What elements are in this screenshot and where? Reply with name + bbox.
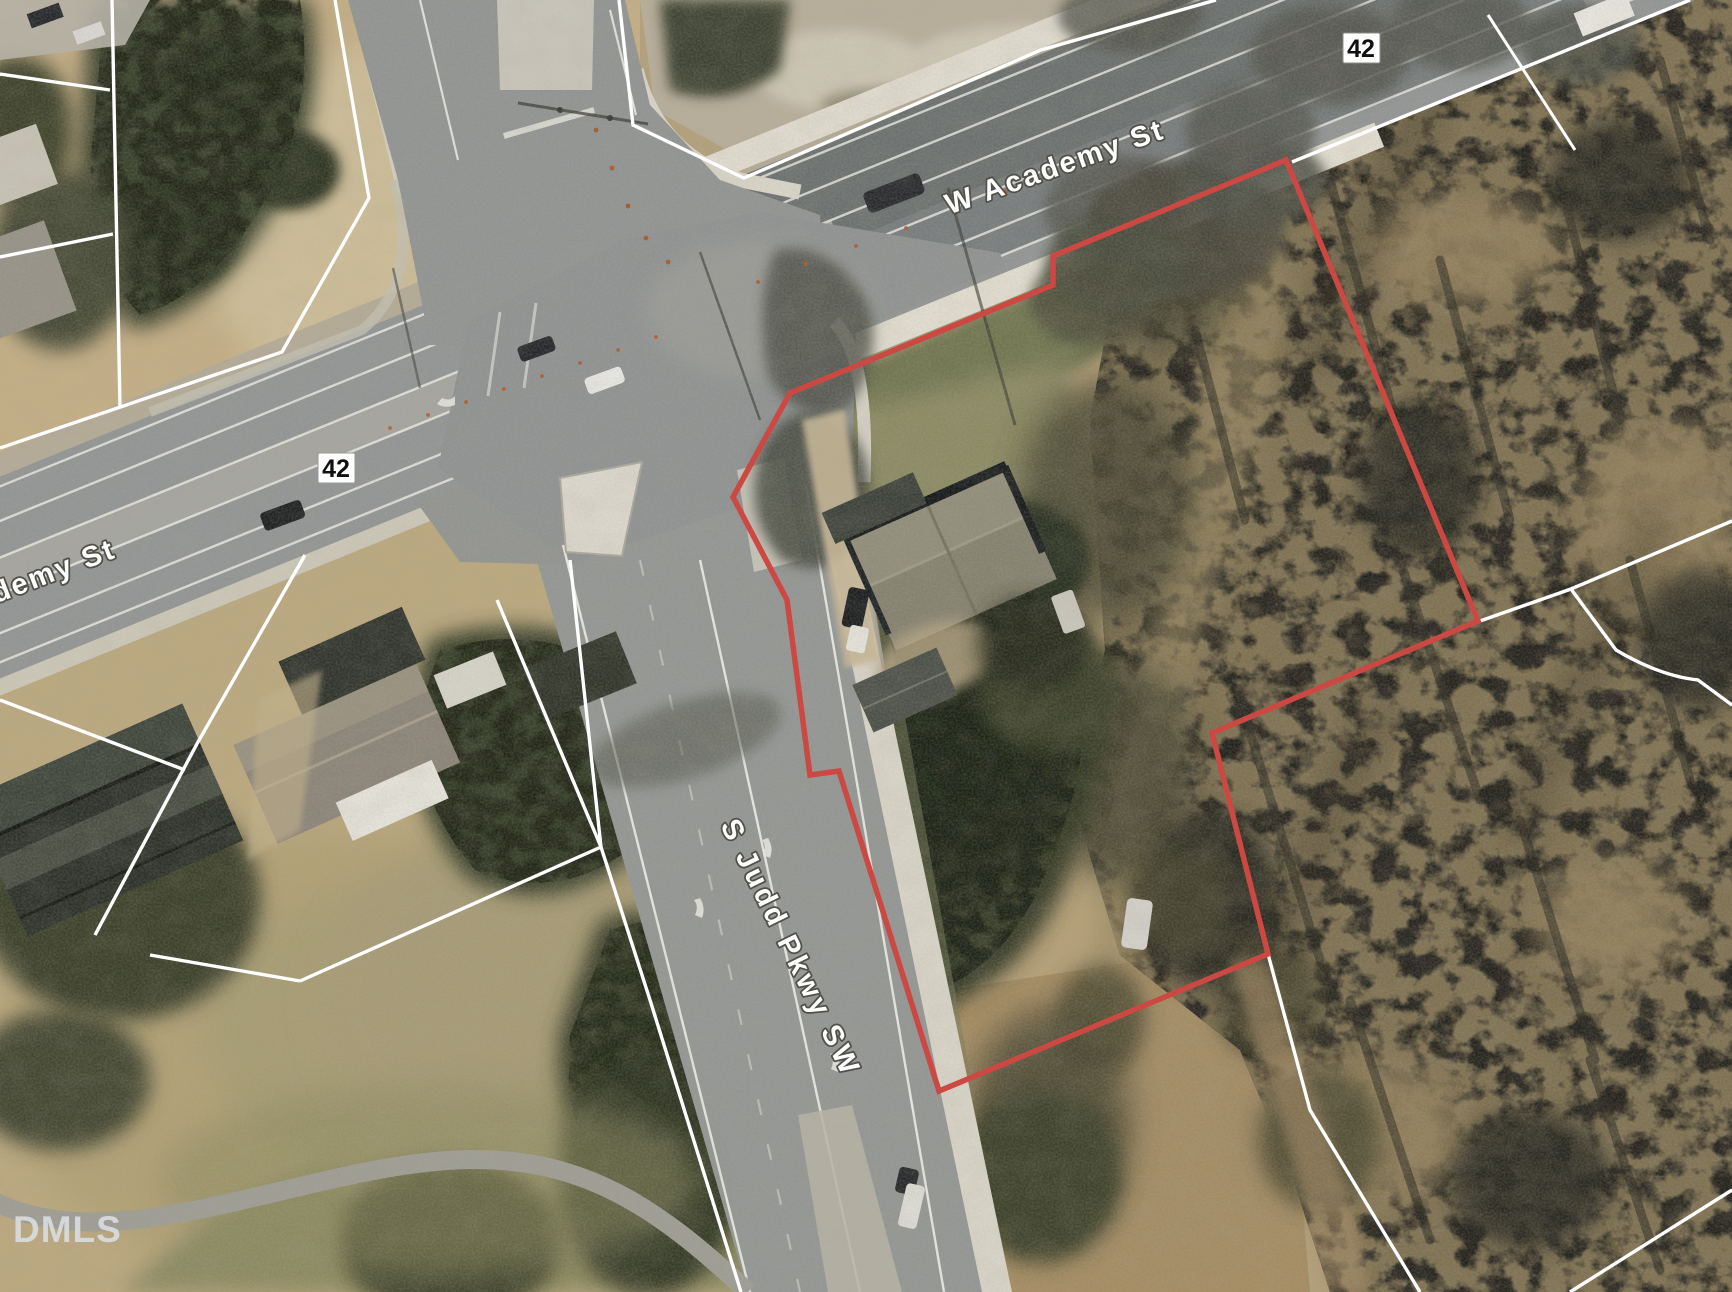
svg-text:42: 42: [1347, 35, 1375, 63]
svg-text:42: 42: [322, 455, 350, 483]
svg-text:DMLS: DMLS: [13, 1209, 122, 1250]
